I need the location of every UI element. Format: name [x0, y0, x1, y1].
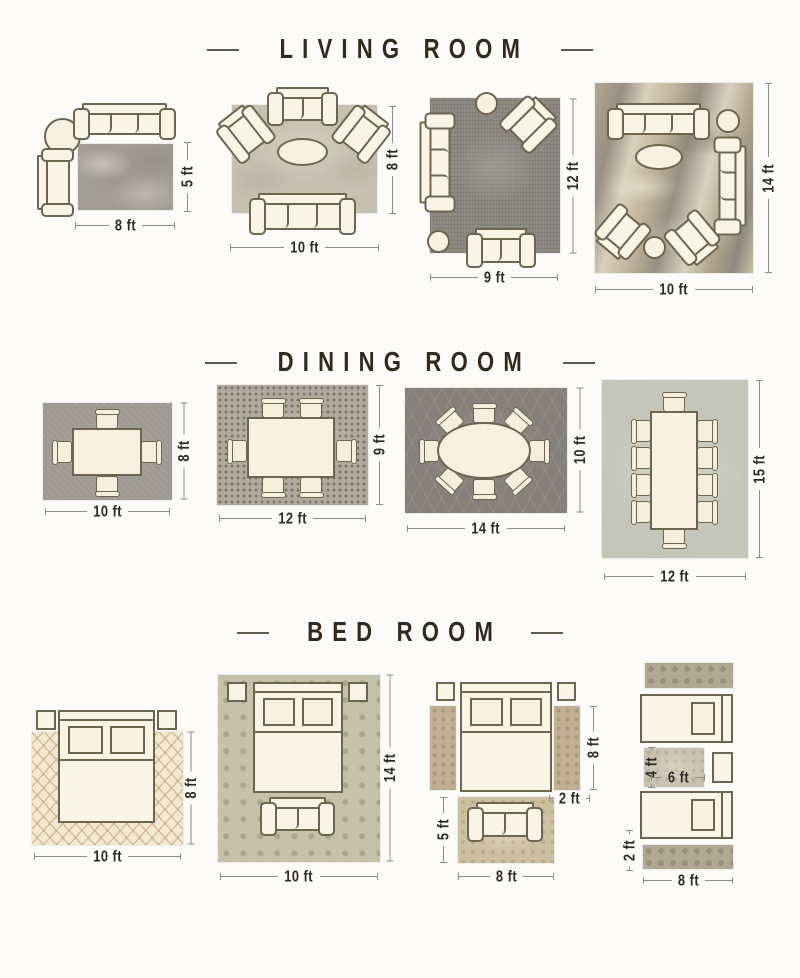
- sofa-arm: [249, 198, 266, 235]
- dim-line: [705, 880, 734, 881]
- nightstand: [712, 752, 733, 783]
- sofa-arm: [41, 203, 74, 217]
- dining-chair: [697, 501, 714, 523]
- dining-chair: [663, 528, 685, 545]
- dim-line: [695, 777, 706, 778]
- dining-chair: [300, 401, 322, 418]
- side-table-round: [427, 230, 450, 253]
- dim-line: [313, 518, 366, 519]
- dim-line: [579, 471, 580, 513]
- dim-line: [392, 177, 393, 215]
- dim-line: [572, 197, 573, 254]
- sofa-arm: [159, 108, 176, 140]
- sofa-cushion: [646, 115, 674, 133]
- dim-label: 10 ft: [285, 867, 314, 885]
- dim-line: [593, 765, 594, 791]
- dim-label: 5 ft: [178, 166, 196, 187]
- coffee-table-oval: [635, 144, 683, 170]
- dim-line: [443, 797, 444, 814]
- sofa-arm: [519, 233, 536, 268]
- sofa-cushion: [48, 157, 68, 208]
- dim-front-rug-height: 5 ft: [435, 797, 451, 863]
- sofa-arm: [73, 108, 90, 140]
- dining-chair: [634, 420, 651, 442]
- dim-label: 10 ft: [660, 280, 689, 298]
- dining-chair: [473, 406, 495, 423]
- sofa-arm: [260, 802, 277, 836]
- bed-bench: [260, 797, 335, 833]
- dining-chair: [141, 441, 158, 463]
- dim-line: [183, 403, 184, 435]
- dining-chair: [529, 440, 546, 462]
- sofa-seats: [432, 124, 449, 202]
- sofa-three-seat: [73, 103, 176, 137]
- dim-label: 10 ft: [93, 847, 122, 865]
- headboard: [462, 684, 550, 693]
- sofa-arm: [466, 233, 483, 268]
- dim-line: [128, 511, 170, 512]
- pillow-row: [255, 693, 341, 726]
- dim-line: [695, 289, 753, 290]
- dim-width-living-9x12: 9 ft: [430, 269, 558, 285]
- dining-chair: [230, 440, 247, 462]
- loveseat: [267, 87, 338, 123]
- chaise-chair: [37, 148, 72, 217]
- sofa-cushion: [112, 115, 140, 133]
- sofa-body: [616, 103, 701, 135]
- dim-mid-rug-width: 6 ft: [651, 769, 705, 785]
- sofa-back: [477, 230, 525, 240]
- dim-label: 12 ft: [661, 567, 690, 585]
- dim-label: 8 ft: [677, 871, 698, 889]
- dim-label: 9 ft: [483, 268, 504, 286]
- dim-label: 8 ft: [383, 149, 401, 170]
- coffee-table-oval: [277, 138, 328, 166]
- sofa-back: [260, 195, 345, 205]
- dim-line: [579, 387, 580, 429]
- side-table-round: [475, 92, 498, 115]
- dim-width-living-8x5: 8 ft: [75, 217, 175, 233]
- dim-label: 14 ft: [381, 754, 399, 783]
- dim-line: [190, 805, 191, 845]
- sofa-back: [278, 89, 327, 99]
- dim-height-dining-12x15: 15 ft: [751, 380, 767, 558]
- bed: [58, 710, 155, 823]
- dim-line: [187, 194, 188, 213]
- dim-label: 10 ft: [290, 238, 319, 256]
- pillow: [110, 726, 145, 754]
- sofa-three-seat: [249, 193, 356, 232]
- nightstand: [436, 682, 455, 701]
- dim-line: [407, 528, 465, 529]
- rug-living-8x5: [78, 144, 173, 210]
- runner-rug: [554, 706, 580, 790]
- title-dash: [207, 49, 239, 51]
- dim-line: [629, 830, 630, 834]
- dining-chair: [96, 476, 118, 493]
- dim-runner-height: 2 ft: [621, 843, 637, 871]
- sofa-body: [258, 193, 347, 230]
- sofa-arm: [318, 802, 335, 836]
- side-table-round: [643, 236, 666, 259]
- dim-line: [759, 380, 760, 448]
- dim-line: [45, 511, 87, 512]
- dim-line: [183, 468, 184, 500]
- dim-line: [219, 518, 272, 519]
- title-dash: [563, 362, 595, 364]
- section-title-living-room: LIVING ROOM: [0, 36, 800, 64]
- dim-line: [379, 385, 380, 429]
- dim-label: 10 ft: [571, 436, 589, 465]
- dim-label: 14 ft: [472, 519, 501, 537]
- dim-line: [187, 142, 188, 161]
- pillow: [470, 698, 503, 726]
- headboard: [721, 695, 723, 742]
- side-table-round: [716, 109, 740, 133]
- sofa-three-seat: [420, 113, 453, 213]
- runner-rug: [430, 706, 456, 790]
- dim-label: 10 ft: [93, 502, 122, 520]
- dim-width-living-10x14: 10 ft: [595, 281, 753, 297]
- dim-line: [379, 462, 380, 506]
- sofa-back: [84, 105, 165, 115]
- dim-label: 2 ft: [620, 840, 638, 861]
- sofa-back: [422, 124, 432, 202]
- dining-table: [72, 428, 142, 476]
- title-dash: [205, 362, 237, 364]
- dim-line: [230, 247, 284, 248]
- dim-width-dining-12x9: 12 ft: [219, 510, 366, 526]
- dim-line: [651, 777, 662, 778]
- dim-height-living-8x5: 5 ft: [179, 142, 195, 212]
- dim-line: [768, 199, 769, 273]
- section-title-bed-room: BED ROOM: [0, 619, 800, 647]
- sofa-arm: [714, 219, 742, 236]
- sofa-arm: [526, 807, 543, 842]
- sofa-body: [420, 122, 451, 204]
- runner-rug: [643, 845, 733, 869]
- twin-bed: [640, 694, 733, 743]
- bed: [253, 682, 343, 793]
- dim-runner-width: 2 ft: [549, 790, 587, 806]
- dim-height-bedroom-10x14: 14 ft: [382, 675, 398, 862]
- dining-chair: [262, 401, 284, 418]
- title-dash: [531, 632, 563, 634]
- dim-line: [190, 732, 191, 772]
- nightstand: [227, 682, 247, 702]
- dim-runner-width: 8 ft: [643, 872, 733, 888]
- nightstand: [557, 682, 576, 701]
- rug-size-guide: LIVING ROOM DINING ROOM BED ROOM 8 ft 5 …: [0, 0, 800, 978]
- section-title-text: BED ROOM: [298, 617, 502, 649]
- dim-label: 8 ft: [182, 777, 200, 798]
- dim-line: [128, 856, 181, 857]
- dim-label: 8 ft: [175, 440, 193, 461]
- headboard: [60, 712, 153, 721]
- loveseat: [466, 228, 536, 265]
- dim-line: [651, 747, 652, 751]
- sofa-back: [478, 804, 532, 814]
- bed: [460, 682, 552, 792]
- sofa-cushion: [721, 174, 735, 200]
- sofa-arm: [339, 198, 356, 235]
- dim-label: 12 ft: [278, 509, 307, 527]
- dim-height-living-9x12: 12 ft: [565, 99, 581, 254]
- dim-line: [389, 674, 390, 747]
- dining-chair: [634, 474, 651, 496]
- dim-line: [696, 576, 746, 577]
- sofa-seats: [477, 240, 525, 261]
- nightstand: [36, 710, 56, 730]
- dim-front-rug-width: 8 ft: [458, 868, 554, 884]
- dim-height-dining-10x8: 8 ft: [176, 403, 192, 500]
- sofa-back: [618, 105, 699, 115]
- pillow: [691, 702, 715, 735]
- dim-label: 6 ft: [667, 768, 688, 786]
- sofa-arm: [41, 148, 74, 162]
- sofa-body: [37, 155, 70, 210]
- dim-width-dining-14x10: 14 ft: [407, 520, 565, 536]
- pillow: [302, 698, 334, 726]
- dim-label: 5 ft: [434, 819, 452, 840]
- dining-chair: [697, 474, 714, 496]
- pillow-row: [60, 721, 153, 754]
- dim-line: [34, 856, 87, 857]
- section-title-dining-room: DINING ROOM: [0, 349, 800, 377]
- dim-line: [458, 876, 490, 877]
- title-dash: [237, 632, 269, 634]
- pillow: [263, 698, 295, 726]
- dining-table: [650, 411, 698, 530]
- sofa-seats: [271, 809, 324, 829]
- sofa-seats: [48, 157, 68, 208]
- dining-chair: [663, 395, 685, 412]
- pillow: [691, 799, 715, 831]
- sofa-cushion: [432, 148, 449, 175]
- dim-line: [643, 880, 672, 881]
- dim-height-dining-14x10: 10 ft: [572, 388, 588, 513]
- dining-chair: [96, 412, 118, 429]
- blanket-fold: [255, 731, 341, 733]
- dim-line: [523, 876, 555, 877]
- dim-runner-height: 8 ft: [585, 706, 601, 790]
- dim-line: [220, 876, 278, 877]
- sofa-body: [82, 103, 167, 135]
- pillow: [510, 698, 543, 726]
- blanket-fold: [60, 759, 153, 761]
- dining-chair: [55, 441, 72, 463]
- dim-label: 8 ft: [114, 216, 135, 234]
- pillow: [68, 726, 103, 754]
- dim-line: [768, 83, 769, 157]
- dim-line: [325, 247, 379, 248]
- dining-chair: [336, 440, 353, 462]
- dim-width-dining-12x15: 12 ft: [604, 568, 746, 584]
- dim-line: [142, 225, 176, 226]
- sofa-arm: [321, 92, 338, 126]
- dim-line: [443, 847, 444, 864]
- sofa-body: [719, 146, 747, 227]
- sofa-seats: [618, 115, 699, 133]
- dining-table-oval: [437, 422, 531, 479]
- dim-line: [320, 876, 378, 877]
- dim-label: 8 ft: [495, 867, 516, 885]
- dim-line: [572, 98, 573, 155]
- dining-table: [247, 417, 335, 478]
- sofa-seats: [260, 205, 345, 228]
- dim-label: 14 ft: [759, 164, 777, 193]
- dim-line: [759, 490, 760, 558]
- dining-chair: [697, 420, 714, 442]
- dim-label: 8 ft: [584, 737, 602, 758]
- dim-label: 9 ft: [370, 434, 388, 455]
- dim-line: [507, 528, 565, 529]
- blanket-fold: [462, 731, 550, 733]
- dim-width-dining-10x8: 10 ft: [45, 503, 170, 519]
- dim-label: 15 ft: [750, 455, 768, 484]
- sofa-three-seat: [717, 137, 747, 236]
- dim-line: [549, 798, 553, 799]
- title-dash: [561, 49, 593, 51]
- pillow-row: [462, 693, 550, 726]
- dim-line: [604, 576, 654, 577]
- dim-width-living-10x8: 10 ft: [230, 239, 379, 255]
- dim-height-living-10x14: 14 ft: [760, 83, 776, 273]
- dim-line: [629, 867, 630, 871]
- sofa-seats: [278, 99, 327, 119]
- sofa-three-seat: [607, 103, 710, 137]
- dining-chair: [473, 479, 495, 496]
- sofa-arm: [467, 807, 484, 842]
- dim-height-living-10x8: 8 ft: [384, 106, 400, 214]
- section-title-text: DINING ROOM: [269, 347, 532, 379]
- dim-width-bedroom-10x14: 10 ft: [220, 868, 378, 884]
- sofa-arm: [425, 113, 456, 130]
- sofa-seats: [478, 814, 532, 835]
- sofa-arm: [693, 108, 710, 140]
- dim-label: 2 ft: [559, 789, 580, 807]
- nightstand: [348, 682, 368, 702]
- dim-line: [593, 706, 594, 732]
- sofa-arm: [714, 137, 742, 154]
- dim-line: [392, 106, 393, 144]
- sofa-arm: [607, 108, 624, 140]
- dining-chair: [634, 447, 651, 469]
- dim-line: [75, 225, 109, 226]
- sofa-arm: [267, 92, 284, 126]
- dining-chair: [634, 501, 651, 523]
- twin-bed: [640, 791, 733, 839]
- dim-line: [595, 289, 653, 290]
- sofa-arm: [425, 196, 456, 213]
- dim-line: [586, 798, 590, 799]
- dining-chair: [300, 477, 322, 494]
- runner-rug: [645, 663, 733, 688]
- dim-width-bedroom-10x8: 10 ft: [34, 848, 181, 864]
- dim-line: [511, 277, 559, 278]
- dim-height-bedroom-10x8: 8 ft: [183, 732, 199, 845]
- dim-label: 12 ft: [564, 162, 582, 191]
- sofa-back: [735, 148, 745, 225]
- sofa-seats: [721, 148, 735, 225]
- section-title-text: LIVING ROOM: [271, 34, 530, 66]
- sofa-back: [39, 157, 48, 208]
- sofa-seats: [84, 115, 165, 133]
- dim-height-dining-12x9: 9 ft: [371, 385, 387, 505]
- sofa-back: [271, 799, 324, 809]
- dining-chair: [697, 447, 714, 469]
- loveseat: [467, 802, 543, 839]
- sofa-cushion: [289, 205, 318, 228]
- dining-chair: [262, 477, 284, 494]
- headboard: [255, 684, 341, 693]
- dim-line: [389, 789, 390, 862]
- headboard: [721, 792, 723, 838]
- nightstand: [157, 710, 177, 730]
- dim-line: [430, 277, 478, 278]
